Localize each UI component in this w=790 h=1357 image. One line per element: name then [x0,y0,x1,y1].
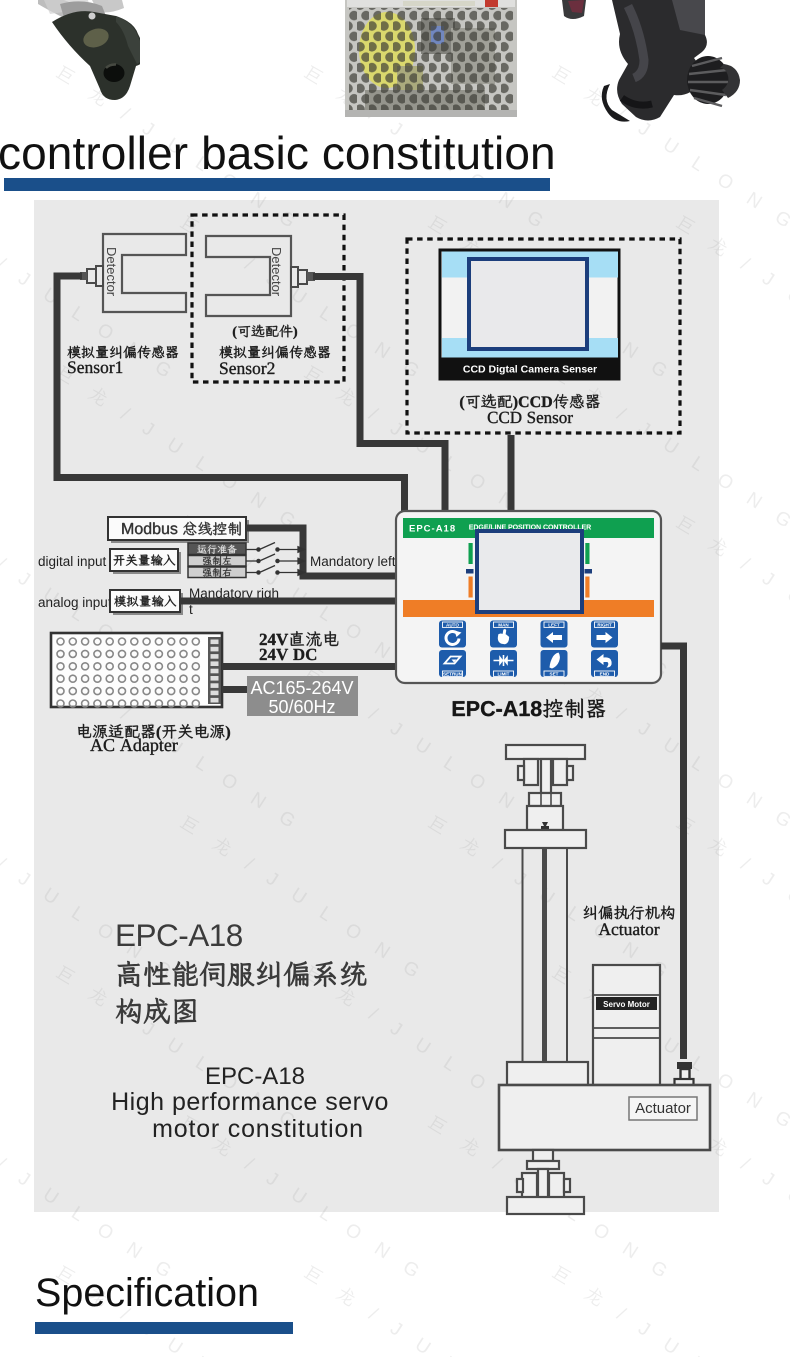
svg-text:Mandatory left: Mandatory left [310,554,396,569]
svg-text:Actuator: Actuator [635,1100,691,1117]
svg-text:END: END [600,671,610,676]
svg-text:Detector: Detector [104,247,119,297]
svg-text:Detector: Detector [269,247,284,297]
svg-text:EPC-A18: EPC-A18 [409,524,456,535]
svg-text:MAN: MAN [498,622,509,627]
svg-text:LIMIT: LIMIT [498,671,510,676]
svg-text:SETRUN: SETRUN [443,671,463,676]
svg-text:LEFT: LEFT [548,622,560,627]
svg-text:analog input: analog input [38,595,112,610]
svg-text:AC165-264V: AC165-264V [250,678,353,698]
svg-text:RIGHT: RIGHT [597,622,611,627]
svg-text:CCD Digtal Camera Senser: CCD Digtal Camera Senser [463,364,597,376]
svg-text:digital input: digital input [38,554,107,569]
svg-text:AUTO: AUTO [446,622,459,627]
svg-text:EPC-A18: EPC-A18 [115,917,243,953]
svg-text:SET: SET [550,671,559,676]
svg-text:50/60Hz: 50/60Hz [268,697,335,717]
svg-text:Servo Motor: Servo Motor [603,1000,650,1009]
